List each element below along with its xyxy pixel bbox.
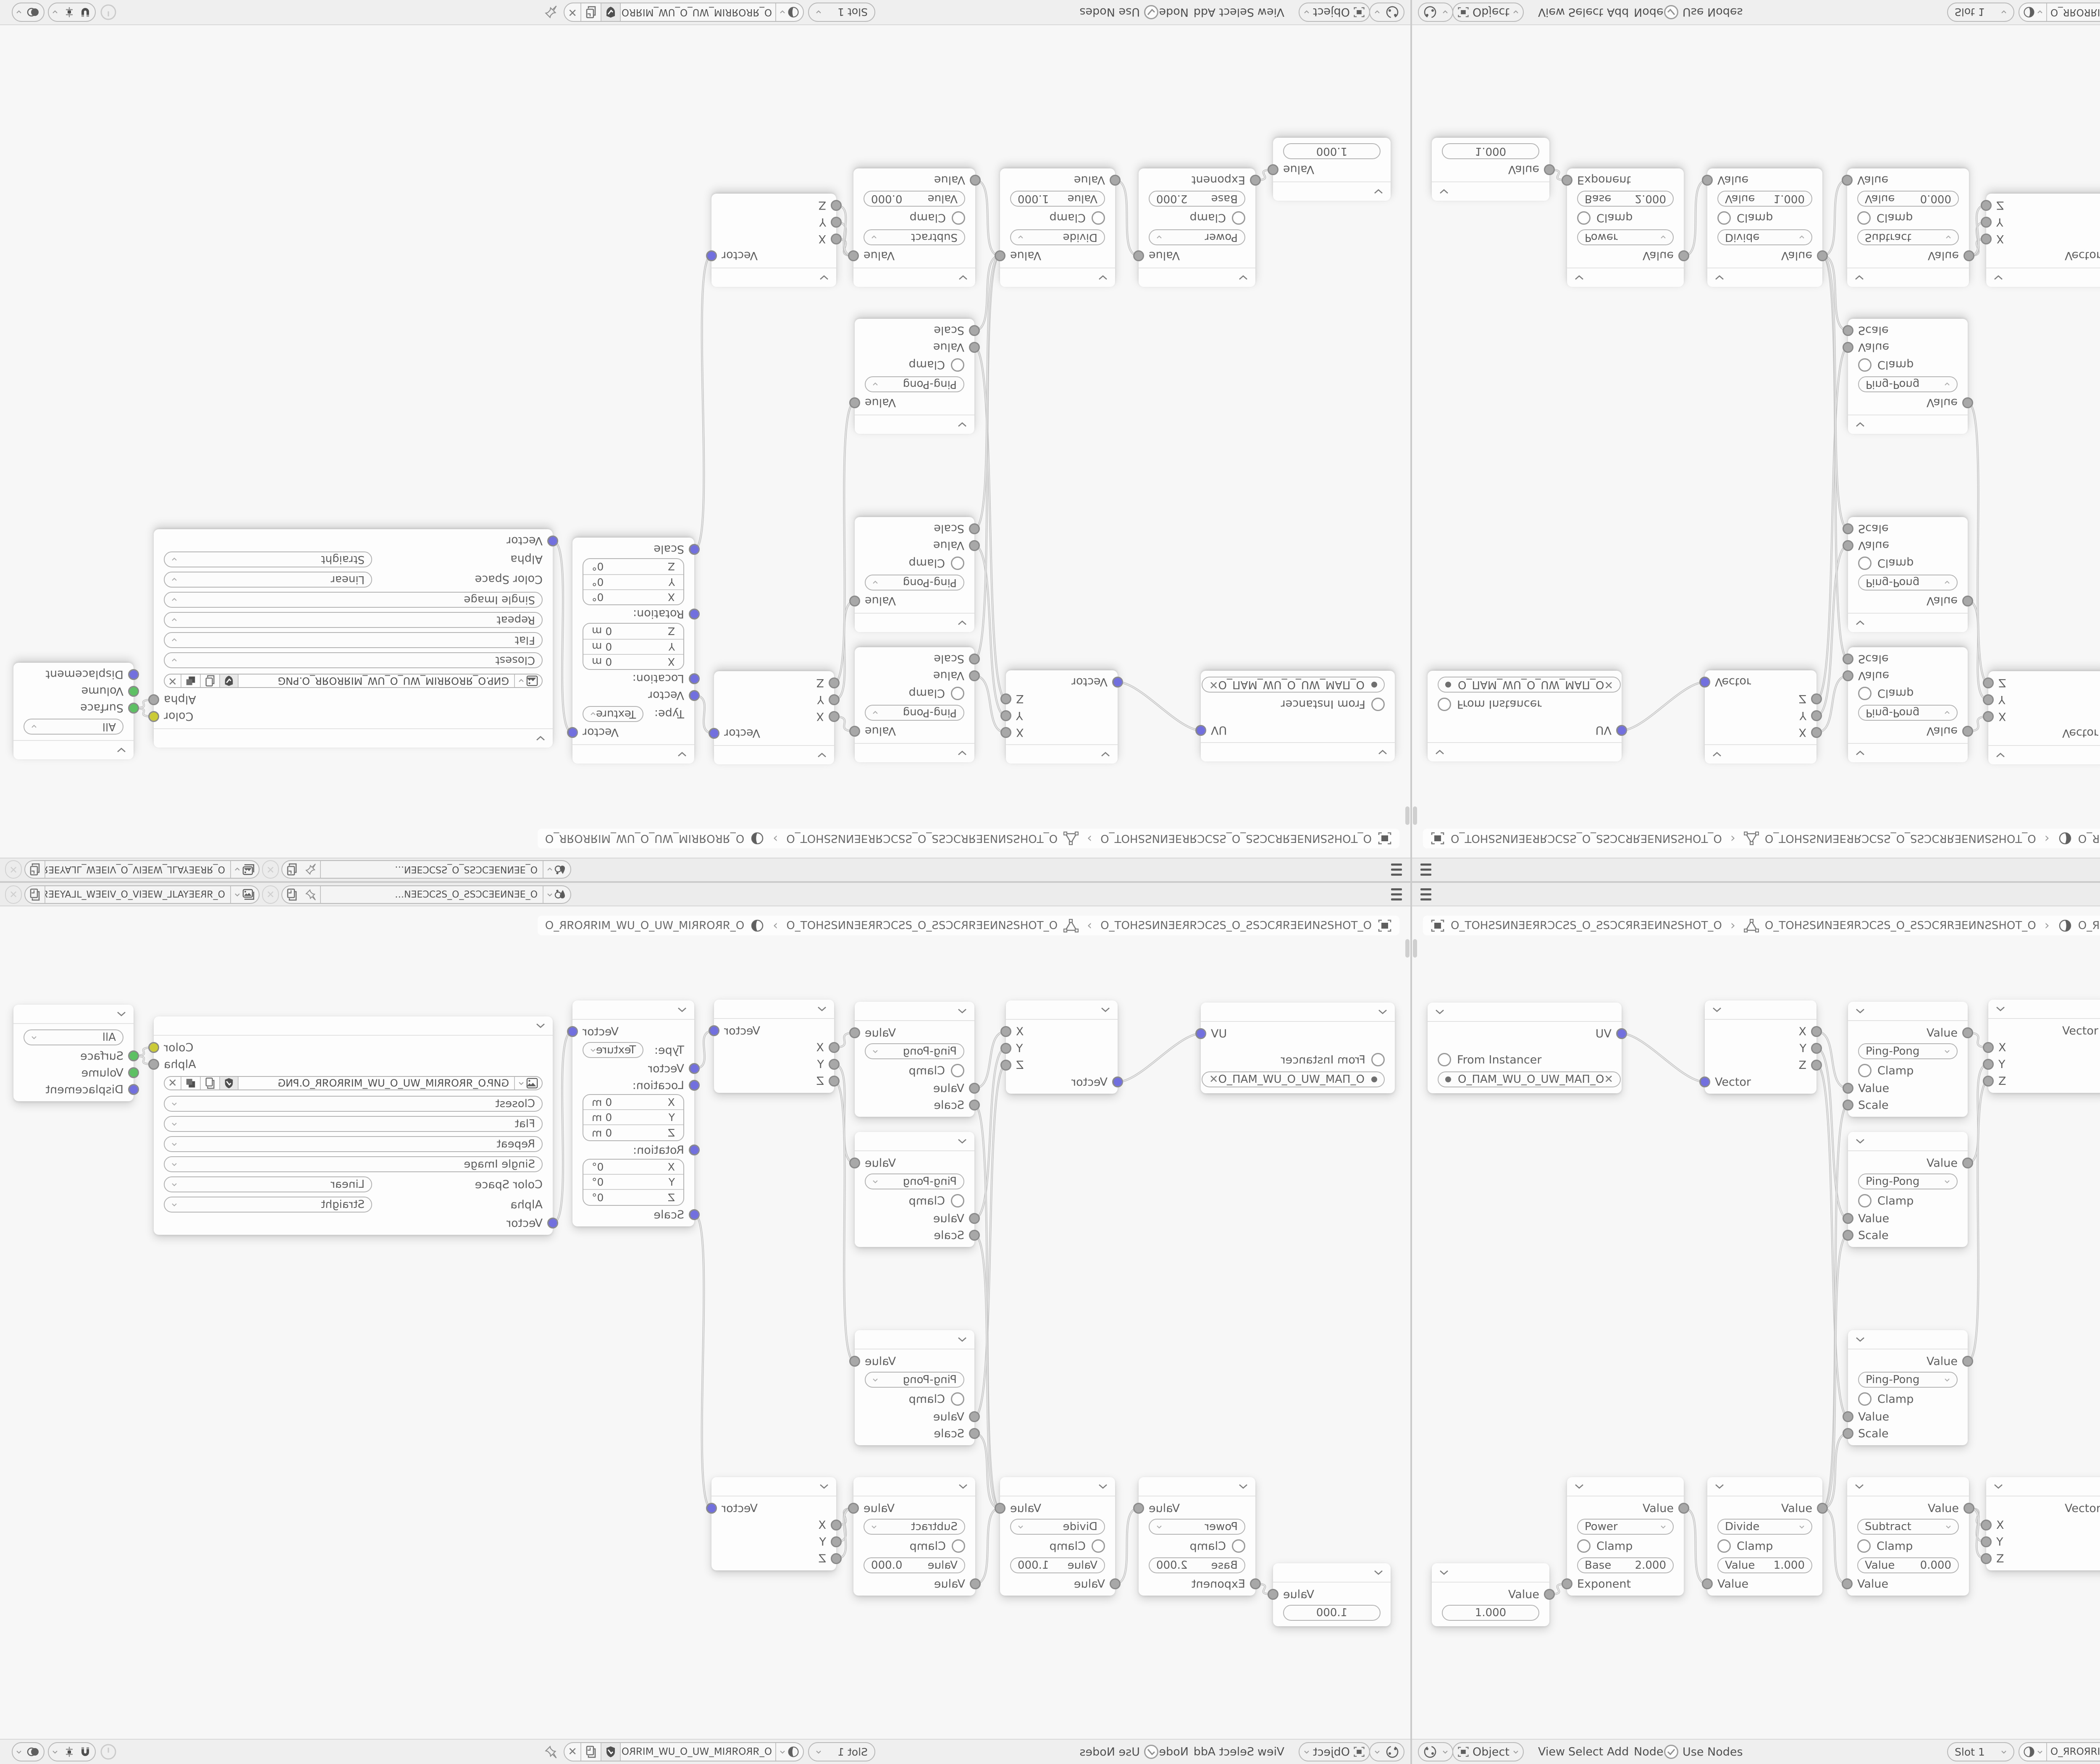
dropdown-ping-pong[interactable]: Ping-Pong xyxy=(1858,1043,1958,1059)
node-pow[interactable]: ValuePowerClampBase2.000Exponent xyxy=(1567,168,1684,287)
input-socket-ValueIn[interactable] xyxy=(1702,175,1713,186)
node-header[interactable] xyxy=(1705,744,1816,764)
node-pp2[interactable]: ValuePing-PongClampValueScale xyxy=(1848,517,1968,632)
input-socket-X[interactable] xyxy=(1983,1042,1994,1053)
dropdown-divide[interactable]: Divide xyxy=(1717,1519,1812,1535)
checkbox-clamp[interactable]: Clamp xyxy=(1000,209,1115,227)
input-socket-Scale[interactable] xyxy=(1843,523,1853,534)
input-socket-ValueIn[interactable] xyxy=(1843,1411,1853,1422)
checkbox-clamp[interactable]: Clamp xyxy=(1707,209,1822,227)
number-field[interactable]: Value1.000 xyxy=(1717,191,1812,207)
node-header[interactable] xyxy=(1707,268,1822,287)
output-socket-Value[interactable] xyxy=(1817,250,1828,261)
collapse-chevron-icon[interactable] xyxy=(1996,753,2005,758)
image-copy-icon[interactable] xyxy=(200,1077,219,1089)
uv-map-clear-icon[interactable]: ✕ xyxy=(1604,1073,1613,1086)
node-header[interactable] xyxy=(1000,1477,1115,1496)
auto-render-icon[interactable] xyxy=(99,1743,118,1761)
output-socket-UV[interactable] xyxy=(1195,725,1206,736)
node-editor-canvas[interactable]: O_TOHƧSИNƎEЯRƆCƧS_O_ƧSƆCЯRƎEИNƧSHOT_O › … xyxy=(1412,25,2100,858)
output-socket-Value[interactable] xyxy=(1133,1503,1144,1514)
node-pp3[interactable]: ValuePing-PongClampValueScale xyxy=(1848,1330,1968,1445)
vector-component-field[interactable]: Z0 m xyxy=(583,624,683,639)
output-socket-Value[interactable] xyxy=(849,726,860,737)
input-socket-Vector[interactable] xyxy=(1112,677,1123,688)
number-field[interactable]: Base2.000 xyxy=(1577,1557,1674,1573)
menu-node[interactable]: Node xyxy=(1634,6,1663,19)
breadcrumb-scene[interactable]: O_TOHƧSИNƎEЯRƆCƧS_O_ƧSƆCЯRƎEИNƧSHOT_O xyxy=(1451,919,1722,932)
collapse-chevron-icon[interactable] xyxy=(958,751,967,756)
collapse-chevron-icon[interactable] xyxy=(958,422,967,427)
node-header[interactable] xyxy=(855,415,974,434)
view-layer-name[interactable]: O_ЯRƎEYA⅃L_WƎEIV_O_VIƎEW_⅃LAYƎEЯR_O xyxy=(45,864,230,875)
view-layer-selector[interactable]: O_ЯRƎEYA⅃L_WƎEIV_O_VIƎEW_⅃LAYƎEЯR_O xyxy=(24,885,260,904)
collapse-chevron-icon[interactable] xyxy=(958,1008,967,1013)
dropdown-power[interactable]: Power xyxy=(1149,1519,1245,1535)
material-copy-icon[interactable] xyxy=(580,3,601,21)
input-socket-Z[interactable] xyxy=(1981,1553,1992,1564)
node-header[interactable] xyxy=(1201,742,1395,761)
view-layer-copy-icon[interactable] xyxy=(25,886,45,903)
output-socket-Value[interactable] xyxy=(1268,1589,1278,1600)
output-socket-X[interactable] xyxy=(1811,727,1822,738)
slot-dropdown[interactable]: Slot 1 xyxy=(808,3,875,22)
checkbox-circle[interactable] xyxy=(951,687,964,700)
node-header[interactable] xyxy=(1567,1477,1684,1496)
node-map[interactable]: VectorType:TextureVectorLocation:X0 mY0 … xyxy=(572,1000,694,1226)
output-socket-Z[interactable] xyxy=(1000,693,1011,704)
uv-map-clear-icon[interactable]: ✕ xyxy=(1209,1073,1218,1086)
output-socket-Value[interactable] xyxy=(1962,596,1973,606)
node-header[interactable] xyxy=(1848,415,1968,434)
node-header[interactable] xyxy=(154,1016,553,1036)
node-header[interactable] xyxy=(714,1000,834,1019)
material-selector[interactable]: O_ЯROЯRIM_WU_O_UW_MIЯROЯR_O ✕ xyxy=(2019,3,2100,22)
output-socket-UV[interactable] xyxy=(1616,1028,1627,1039)
node-header[interactable] xyxy=(13,740,134,759)
input-socket-X[interactable] xyxy=(831,1520,842,1530)
output-socket-Value[interactable] xyxy=(849,596,860,606)
input-socket-Location[interactable] xyxy=(689,1080,700,1091)
menu-icon[interactable] xyxy=(1391,888,1402,900)
checkbox-circle[interactable] xyxy=(1577,211,1591,225)
editor-type-button[interactable] xyxy=(1369,3,1404,22)
checkbox-circle[interactable] xyxy=(1857,211,1871,225)
number-field[interactable]: Base2.000 xyxy=(1577,191,1674,207)
snapping-control[interactable] xyxy=(48,1742,96,1761)
dropdown-flat[interactable]: Flat xyxy=(164,632,543,648)
output-socket-Y[interactable] xyxy=(1811,710,1822,721)
input-socket-ValueIn[interactable] xyxy=(1702,1578,1713,1589)
image-name[interactable]: GИP.O_ЯROЯRIM_WU_O_UW_MIЯROЯR_O.PNG xyxy=(238,1077,514,1089)
node-pp1[interactable]: ValuePing-PongClampValueScale xyxy=(855,647,974,762)
checkbox-circle[interactable] xyxy=(951,556,964,570)
node-img[interactable]: ColorAlphaGИP.O_ЯROЯRIM_WU_O_UW_MIЯROЯR_… xyxy=(154,529,553,748)
checkbox-circle[interactable] xyxy=(951,1392,964,1406)
node-sep[interactable]: XYZVector xyxy=(1006,670,1118,764)
collapse-chevron-icon[interactable] xyxy=(958,275,968,280)
uv-map-clear-icon[interactable]: ✕ xyxy=(1209,678,1218,691)
overlays-icon[interactable] xyxy=(27,6,40,18)
output-socket-Z[interactable] xyxy=(1811,693,1822,704)
collapse-chevron-icon[interactable] xyxy=(1855,1484,1864,1489)
input-socket-ValueIn[interactable] xyxy=(969,342,980,353)
fake-user-shield-icon[interactable] xyxy=(601,3,620,21)
input-socket-ValueIn[interactable] xyxy=(969,670,980,681)
dropdown-single-image[interactable]: Single Image xyxy=(164,592,543,608)
node-out[interactable]: AllSurfaceVolumeDisplacement xyxy=(13,1005,134,1101)
dropdown-texture[interactable]: Texture xyxy=(583,706,643,722)
node-cmb1[interactable]: VectorXYZ xyxy=(714,1000,834,1093)
scene-unlink-icon[interactable]: ✕ xyxy=(262,860,279,879)
material-selector[interactable]: O_ЯROЯRIM_WU_O_UW_MIЯROЯR_O ✕ xyxy=(564,1742,804,1761)
shader-type-dropdown[interactable]: Object xyxy=(1299,3,1370,22)
vector-component-field[interactable]: Z0° xyxy=(583,1190,683,1205)
node-header[interactable] xyxy=(1432,181,1549,201)
input-socket-X[interactable] xyxy=(831,234,842,244)
output-socket-Z[interactable] xyxy=(1811,1060,1822,1071)
node-editor-canvas[interactable]: O_TOHƧSИNƎEЯRƆCƧS_O_ƧSƆCЯRƎEИNƧSHOT_O › … xyxy=(0,906,1410,1739)
output-socket-Value[interactable] xyxy=(849,1356,860,1367)
collapse-chevron-icon[interactable] xyxy=(817,753,827,758)
menu-node[interactable]: Node xyxy=(1159,1746,1189,1759)
dropdown-straight[interactable]: Straight xyxy=(164,1197,372,1213)
scene-selector[interactable]: O_ƎEИNƎEƆCƧS_O_ƧSƆCƎEИ… xyxy=(281,860,571,879)
node-header[interactable] xyxy=(1432,1563,1549,1583)
scene-icon[interactable] xyxy=(543,861,570,878)
input-socket-ValueIn[interactable] xyxy=(1842,175,1853,186)
node-editor-canvas[interactable]: O_TOHƧSИNƎEЯRƆCƧS_O_ƧSƆCЯRƎEИNƧSHOT_O › … xyxy=(0,25,1410,858)
menu-view[interactable]: View xyxy=(1257,1746,1284,1759)
node-cmb2[interactable]: VectorXYZ xyxy=(1986,194,2100,287)
node-header[interactable] xyxy=(711,1477,836,1496)
dropdown-linear[interactable]: Linear xyxy=(164,572,372,588)
output-socket-Value[interactable] xyxy=(1962,1356,1973,1367)
use-nodes-checkbox[interactable]: Use Nodes xyxy=(1664,5,1743,19)
checkbox-circle[interactable] xyxy=(1092,211,1105,225)
input-socket-Z[interactable] xyxy=(831,1553,842,1564)
input-socket-Scale[interactable] xyxy=(1843,1100,1853,1110)
collapse-chevron-icon[interactable] xyxy=(1715,275,1724,280)
input-socket-ValueIn[interactable] xyxy=(1110,175,1121,186)
checkbox-circle[interactable] xyxy=(1438,1053,1451,1066)
view-layer-name[interactable]: O_ЯRƎEYA⅃L_WƎEIV_O_VIƎEW_⅃LAYƎEЯR_O xyxy=(45,890,230,900)
input-socket-Vector[interactable] xyxy=(547,535,558,546)
output-socket-Value[interactable] xyxy=(1963,250,1974,261)
collapse-chevron-icon[interactable] xyxy=(1239,1484,1248,1489)
node-header[interactable] xyxy=(855,743,974,762)
slot-dropdown[interactable]: Slot 1 xyxy=(1947,3,2014,22)
checkbox-circle[interactable] xyxy=(1858,1194,1872,1207)
number-field[interactable]: Value0.000 xyxy=(1857,1557,1959,1573)
node-uv[interactable]: UVFrom InstancerO_ПAM_WU_O_UW_MAП_O✕ xyxy=(1428,1003,1622,1093)
material-name[interactable]: O_ЯROЯRIM_WU_O_UW_MIЯROЯR_O xyxy=(2047,3,2100,21)
vector-component-field[interactable]: Z0 m xyxy=(583,1125,683,1140)
collapse-chevron-icon[interactable] xyxy=(117,1011,126,1016)
collapse-chevron-icon[interactable] xyxy=(1856,422,1865,427)
node-cmb1[interactable]: VectorXYZ xyxy=(1988,1000,2100,1093)
editor-type-button[interactable] xyxy=(1418,1742,1453,1761)
node-div[interactable]: ValueDivideClampValue1.000Value xyxy=(1000,168,1115,287)
scene-selector[interactable]: O_ƎEИNƎEƆCƧS_O_ƧSƆCƎEИ… xyxy=(281,885,571,904)
output-socket-X[interactable] xyxy=(1000,727,1011,738)
output-socket-Value[interactable] xyxy=(849,1158,860,1168)
dropdown-ping-pong[interactable]: Ping-Pong xyxy=(1858,575,1958,591)
input-socket-Y[interactable] xyxy=(1983,1059,1994,1070)
vector-component-field[interactable]: X0° xyxy=(583,1160,683,1175)
checkbox-clamp[interactable]: Clamp xyxy=(1567,209,1684,227)
node-header[interactable] xyxy=(1847,1477,1969,1496)
vector-component-field[interactable]: Y0 m xyxy=(583,1110,683,1125)
node-header[interactable] xyxy=(1848,1132,1968,1151)
image-name[interactable]: GИP.O_ЯROЯRIM_WU_O_UW_MIЯROЯR_O.PNG xyxy=(238,675,514,687)
checkbox-clamp[interactable]: Clamp xyxy=(1848,356,1968,374)
node-pp3[interactable]: ValuePing-PongClampValueScale xyxy=(855,1330,974,1445)
collapse-chevron-icon[interactable] xyxy=(1374,1570,1383,1575)
dropdown-ping-pong[interactable]: Ping-Pong xyxy=(1858,705,1958,721)
checkbox-clamp[interactable]: Clamp xyxy=(1848,1061,1968,1080)
collapse-chevron-icon[interactable] xyxy=(536,1023,545,1028)
dropdown-subtract[interactable]: Subtract xyxy=(864,229,965,245)
snapping-control[interactable] xyxy=(48,3,96,22)
pin-icon[interactable] xyxy=(544,1745,558,1759)
uv-map-clear-icon[interactable]: ✕ xyxy=(1604,678,1613,691)
node-sep[interactable]: XYZVector xyxy=(1705,670,1816,764)
shader-type-dropdown[interactable]: Object xyxy=(1299,1742,1370,1761)
breadcrumb-scene[interactable]: O_TOHƧSИNƎEЯRƆCƧS_O_ƧSƆCЯRƎEИNƧSHOT_O xyxy=(1100,919,1372,932)
node-header[interactable] xyxy=(855,1002,974,1021)
collapse-chevron-icon[interactable] xyxy=(1575,1484,1584,1489)
area-resize-handle[interactable] xyxy=(1413,939,1417,958)
breadcrumb-object[interactable]: O_TOHƧSИNƎEЯRƆCƧS_O_ƧSƆCЯRƎEИNƧSHOT_O xyxy=(1765,832,2036,845)
dropdown-single-image[interactable]: Single Image xyxy=(164,1156,543,1172)
dropdown-all[interactable]: All xyxy=(24,1029,123,1045)
input-socket-X[interactable] xyxy=(1983,711,1994,722)
snap-target-icon[interactable] xyxy=(63,6,76,18)
checkbox-circle[interactable] xyxy=(1858,556,1872,570)
view-layer-unlink-icon[interactable]: ✕ xyxy=(5,885,22,904)
collapse-chevron-icon[interactable] xyxy=(1856,1337,1865,1342)
input-socket-ValueIn[interactable] xyxy=(1843,670,1853,681)
image-icon-button[interactable] xyxy=(514,1077,542,1089)
node-header[interactable] xyxy=(1139,268,1255,287)
collapse-chevron-icon[interactable] xyxy=(1435,1009,1444,1014)
menu-add[interactable]: Add xyxy=(1194,6,1215,19)
material-name[interactable]: O_ЯROЯRIM_WU_O_UW_MIЯROЯR_O xyxy=(620,1743,775,1761)
node-pp3[interactable]: ValuePing-PongClampValueScale xyxy=(855,319,974,434)
collapse-chevron-icon[interactable] xyxy=(1856,1139,1865,1144)
node-header[interactable] xyxy=(855,1330,974,1349)
input-socket-Y[interactable] xyxy=(1981,1536,1992,1547)
vector-field-stack[interactable]: X0 mY0 mZ0 m xyxy=(583,1094,684,1141)
node-header[interactable] xyxy=(13,1005,134,1024)
dropdown-ping-pong[interactable]: Ping-Pong xyxy=(865,376,964,392)
material-name[interactable]: O_ЯROЯRIM_WU_O_UW_MIЯROЯR_O xyxy=(2047,1743,2100,1761)
input-socket-Y[interactable] xyxy=(1981,217,1992,228)
input-socket-Volume[interactable] xyxy=(128,686,139,697)
breadcrumb-material[interactable]: O_ЯROЯRIM_WU_O_UW_MIЯROЯR_O xyxy=(545,832,745,845)
vector-component-field[interactable]: X0 m xyxy=(583,1095,683,1110)
uv-map-field[interactable]: O_ПAM_WU_O_UW_MAП_O✕ xyxy=(1438,1071,1621,1087)
output-socket-Value[interactable] xyxy=(1544,164,1555,175)
output-socket-Value[interactable] xyxy=(1962,1027,1973,1038)
checkbox-circle[interactable] xyxy=(1857,1539,1871,1553)
dropdown-subtract[interactable]: Subtract xyxy=(864,1519,965,1535)
checkbox-clamp[interactable]: Clamp xyxy=(1707,1537,1822,1555)
scene-name[interactable]: O_ƎEИNƎEƆCƧS_O_ƧSƆCƎEИ… xyxy=(321,864,543,875)
output-socket-Value[interactable] xyxy=(1962,397,1973,408)
checkbox-clamp[interactable]: Clamp xyxy=(1847,1537,1969,1555)
node-val[interactable]: Value1.000 xyxy=(1273,138,1391,201)
input-socket-Scale[interactable] xyxy=(969,1230,980,1241)
slot-dropdown[interactable]: Slot 1 xyxy=(1947,1742,2014,1761)
checkbox-circle[interactable] xyxy=(952,211,965,225)
breadcrumb-material[interactable]: O_ЯROЯRIM_WU_O_UW_MIЯROЯR_O xyxy=(2078,919,2100,932)
checkbox-clamp[interactable]: Clamp xyxy=(853,1537,975,1555)
output-socket-Value[interactable] xyxy=(848,1503,859,1514)
checkbox-circle[interactable] xyxy=(1858,1064,1872,1077)
input-socket-Vector[interactable] xyxy=(1112,1076,1123,1087)
node-div[interactable]: ValueDivideClampValue1.000Value xyxy=(1000,1477,1115,1596)
fake-user-shield-icon[interactable] xyxy=(601,1743,620,1761)
input-socket-Y[interactable] xyxy=(831,217,842,228)
node-header[interactable] xyxy=(1848,1002,1968,1021)
material-icon-button[interactable] xyxy=(775,3,803,21)
input-socket-Y[interactable] xyxy=(829,694,840,705)
dropdown-ping-pong[interactable]: Ping-Pong xyxy=(865,1043,964,1059)
number-field[interactable]: Value1.000 xyxy=(1010,1557,1105,1573)
checkbox-clamp[interactable]: Clamp xyxy=(1567,1537,1684,1555)
overlays-icon[interactable] xyxy=(27,1746,40,1758)
checkbox-clamp[interactable]: Clamp xyxy=(853,209,975,227)
input-socket-Scale[interactable] xyxy=(689,1209,700,1220)
menu-select[interactable]: Select xyxy=(1219,1746,1254,1759)
collapse-chevron-icon[interactable] xyxy=(1378,1009,1387,1014)
dropdown-repeat[interactable]: Repeat xyxy=(164,1136,543,1152)
input-socket-ValueIn[interactable] xyxy=(1843,1083,1853,1094)
checkbox-circle[interactable] xyxy=(951,358,964,372)
view-layer-selector[interactable]: O_ЯRƎEYA⅃L_WƎEIV_O_VIƎEW_⅃LAYƎEЯR_O xyxy=(24,860,260,879)
output-socket-Y[interactable] xyxy=(1000,710,1011,721)
node-header[interactable] xyxy=(1986,1477,2100,1496)
input-socket-Location[interactable] xyxy=(689,673,700,684)
menu-add[interactable]: Add xyxy=(1607,1746,1629,1759)
collapse-chevron-icon[interactable] xyxy=(1101,1007,1110,1012)
collapse-chevron-icon[interactable] xyxy=(958,1337,967,1342)
checkbox-circle[interactable] xyxy=(1858,1392,1872,1406)
output-socket-Vector[interactable] xyxy=(706,250,717,261)
collapse-chevron-icon[interactable] xyxy=(1996,1006,2005,1011)
checkbox-clamp[interactable]: Clamp xyxy=(855,356,974,374)
input-socket-Z[interactable] xyxy=(1983,1076,1994,1087)
number-field[interactable]: 1.000 xyxy=(1283,1605,1381,1621)
node-pow[interactable]: ValuePowerClampBase2.000Exponent xyxy=(1139,168,1255,287)
node-sub[interactable]: ValueSubtractClampValue0.000Value xyxy=(853,1477,975,1596)
snap-target-icon[interactable] xyxy=(63,1746,76,1758)
breadcrumb-material[interactable]: O_ЯROЯRIM_WU_O_UW_MIЯROЯR_O xyxy=(545,919,745,932)
node-header[interactable] xyxy=(1847,268,1969,287)
collapse-chevron-icon[interactable] xyxy=(1994,275,2003,280)
breadcrumb-object[interactable]: O_TOHƧSИNƎEЯRƆCƧS_O_ƧSƆCЯRƎEИNƧSHOT_O xyxy=(786,919,1058,932)
dropdown-power[interactable]: Power xyxy=(1577,1519,1674,1535)
vector-field-stack[interactable]: X0°Y0°Z0° xyxy=(583,558,684,605)
node-header[interactable] xyxy=(855,613,974,632)
node-img[interactable]: ColorAlphaGИP.O_ЯROЯRIM_WU_O_UW_MIЯROЯR_… xyxy=(154,1016,553,1235)
output-socket-Value[interactable] xyxy=(1133,250,1144,261)
vector-field-stack[interactable]: X0°Y0°Z0° xyxy=(583,1159,684,1206)
checkbox-clamp[interactable]: Clamp xyxy=(1000,1537,1115,1555)
material-icon-button[interactable] xyxy=(2019,3,2047,21)
input-socket-Y[interactable] xyxy=(829,1059,840,1070)
uv-map-field[interactable]: O_ПAM_WU_O_UW_MAП_O✕ xyxy=(1202,1071,1385,1087)
node-uv[interactable]: UVFrom InstancerO_ПAM_WU_O_UW_MAП_O✕ xyxy=(1201,1003,1395,1093)
node-header[interactable] xyxy=(1848,743,1968,762)
collapse-chevron-icon[interactable] xyxy=(1101,752,1110,757)
node-sub[interactable]: ValueSubtractClampValue0.000Value xyxy=(1847,1477,1969,1596)
checkbox-clamp[interactable]: Clamp xyxy=(1139,209,1255,227)
collapse-chevron-icon[interactable] xyxy=(1712,1007,1722,1012)
node-pp1[interactable]: ValuePing-PongClampValueScale xyxy=(855,1002,974,1117)
checkbox-circle[interactable] xyxy=(1232,1539,1245,1553)
dropdown-ping-pong[interactable]: Ping-Pong xyxy=(865,1372,964,1388)
node-header[interactable] xyxy=(711,268,836,287)
node-header[interactable] xyxy=(1139,1477,1255,1496)
output-socket-Value[interactable] xyxy=(1678,1503,1689,1514)
input-socket-Rotation[interactable] xyxy=(689,1144,700,1155)
output-socket-Value[interactable] xyxy=(995,250,1005,261)
material-unlink-icon[interactable]: ✕ xyxy=(564,3,580,21)
collapse-chevron-icon[interactable] xyxy=(1575,275,1584,280)
input-socket-Displacement[interactable] xyxy=(128,669,139,680)
checkbox-circle[interactable] xyxy=(1858,687,1872,700)
editor-type-button[interactable] xyxy=(1418,3,1453,22)
use-nodes-checkbox[interactable]: Use Nodes xyxy=(1079,1745,1158,1759)
input-socket-Vector[interactable] xyxy=(1699,677,1710,688)
node-sub[interactable]: ValueSubtractClampValue0.000Value xyxy=(853,168,975,287)
material-copy-icon[interactable] xyxy=(580,1743,601,1761)
output-socket-X[interactable] xyxy=(1000,1026,1011,1037)
input-socket-Exponent[interactable] xyxy=(1250,175,1261,186)
number-field[interactable]: Base2.000 xyxy=(1149,1557,1245,1573)
collapse-chevron-icon[interactable] xyxy=(1712,752,1722,757)
menu-select[interactable]: Select xyxy=(1219,6,1254,19)
node-header[interactable] xyxy=(1006,744,1118,764)
pin-icon[interactable] xyxy=(544,5,558,19)
collapse-chevron-icon[interactable] xyxy=(958,1484,968,1489)
dropdown-flat[interactable]: Flat xyxy=(164,1116,543,1132)
node-header[interactable] xyxy=(1567,268,1684,287)
input-socket-ValueIn[interactable] xyxy=(969,1411,980,1422)
dropdown-closest[interactable]: Closest xyxy=(164,1096,543,1112)
image-unlink-icon[interactable]: ✕ xyxy=(165,1077,181,1089)
dropdown-ping-pong[interactable]: Ping-Pong xyxy=(865,575,964,591)
node-out[interactable]: AllSurfaceVolumeDisplacement xyxy=(13,663,134,759)
fake-user-shield-icon[interactable] xyxy=(219,675,238,687)
checkbox-circle[interactable] xyxy=(951,1194,964,1207)
input-socket-Vector[interactable] xyxy=(547,1218,558,1228)
node-header[interactable] xyxy=(572,744,694,764)
output-socket-Color[interactable] xyxy=(148,711,159,722)
scene-icon[interactable] xyxy=(543,886,570,903)
pin-icon[interactable] xyxy=(302,886,321,903)
node-header[interactable] xyxy=(572,1000,694,1020)
number-field[interactable]: Value0.000 xyxy=(864,191,965,207)
auto-render-icon[interactable] xyxy=(99,3,118,21)
checkbox-from-instancer[interactable]: From Instancer xyxy=(1201,1050,1395,1069)
collapse-chevron-icon[interactable] xyxy=(117,748,126,753)
node-sep[interactable]: XYZVector xyxy=(1006,1000,1118,1094)
checkbox-circle[interactable] xyxy=(1232,211,1245,225)
